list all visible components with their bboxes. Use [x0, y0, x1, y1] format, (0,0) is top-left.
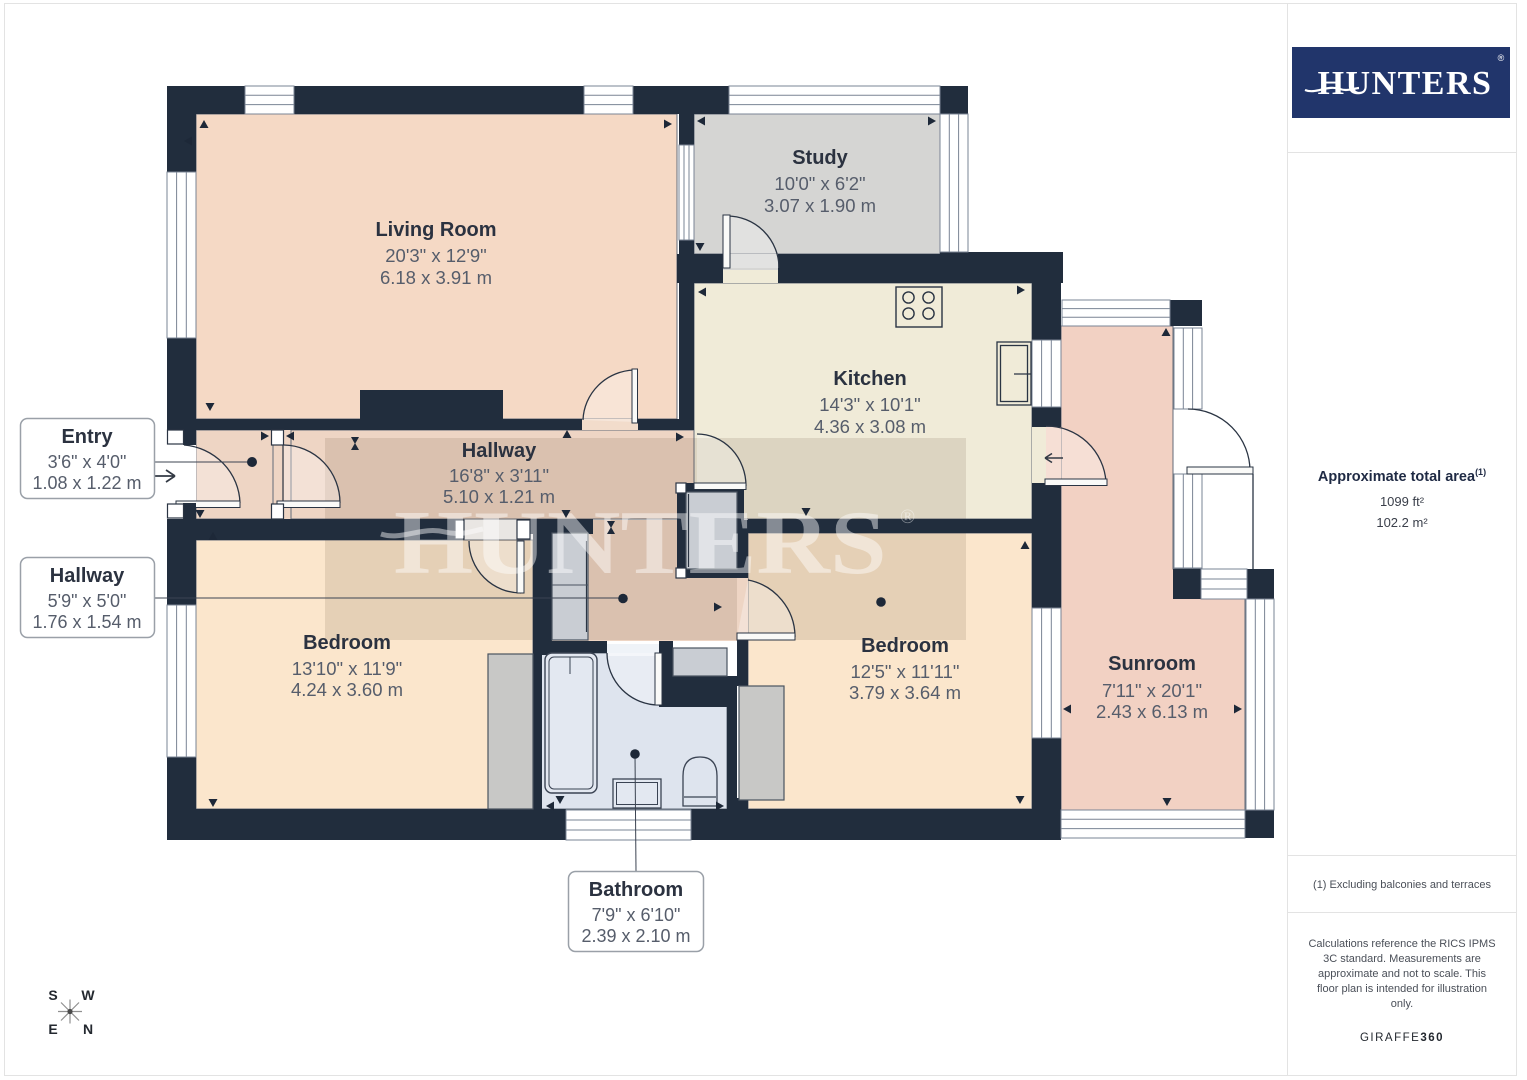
svg-text:3'6" x 4'0": 3'6" x 4'0": [48, 452, 127, 472]
svg-text:7'9" x 6'10": 7'9" x 6'10": [592, 905, 681, 925]
svg-text:W: W: [81, 987, 95, 1003]
svg-text:floor plan is intended for ill: floor plan is intended for illustration: [1317, 983, 1487, 995]
svg-text:Approximate total area(1): Approximate total area(1): [1318, 467, 1486, 485]
svg-text:only.: only.: [1391, 998, 1413, 1010]
svg-text:5'9" x 5'0": 5'9" x 5'0": [48, 591, 127, 611]
svg-text:HUNTERS: HUNTERS: [394, 492, 887, 593]
svg-text:3C standard. Measurements are: 3C standard. Measurements are: [1323, 953, 1481, 965]
svg-text:10'0" x 6'2": 10'0" x 6'2": [774, 173, 865, 194]
svg-text:®: ®: [900, 506, 915, 528]
svg-text:20'3" x 12'9": 20'3" x 12'9": [385, 245, 486, 266]
svg-text:Bedroom: Bedroom: [303, 632, 391, 654]
svg-text:Bedroom: Bedroom: [861, 635, 949, 657]
svg-text:13'10" x 11'9": 13'10" x 11'9": [292, 658, 402, 679]
svg-text:5.10 x 1.21 m: 5.10 x 1.21 m: [443, 486, 555, 507]
svg-text:16'8" x 3'11": 16'8" x 3'11": [449, 465, 549, 486]
svg-text:Kitchen: Kitchen: [833, 368, 906, 390]
svg-text:®: ®: [1498, 53, 1505, 63]
svg-text:7'11" x 20'1": 7'11" x 20'1": [1102, 680, 1202, 701]
svg-text:12'5" x 11'11": 12'5" x 11'11": [850, 661, 959, 682]
svg-text:3.07 x 1.90 m: 3.07 x 1.90 m: [764, 195, 876, 216]
svg-text:1.76 x 1.54 m: 1.76 x 1.54 m: [32, 612, 141, 632]
svg-text:Bathroom: Bathroom: [589, 879, 683, 901]
svg-text:Hallway: Hallway: [462, 440, 537, 462]
svg-text:GIRAFFE360: GIRAFFE360: [1360, 1032, 1444, 1044]
svg-text:(1) Excluding balconies and te: (1) Excluding balconies and terraces: [1313, 879, 1491, 891]
svg-text:Study: Study: [792, 147, 848, 169]
svg-text:Hallway: Hallway: [50, 565, 125, 587]
svg-text:6.18 x 3.91 m: 6.18 x 3.91 m: [380, 267, 492, 288]
svg-text:4.36 x 3.08 m: 4.36 x 3.08 m: [814, 416, 926, 437]
svg-text:1.08 x 1.22 m: 1.08 x 1.22 m: [32, 473, 141, 493]
svg-text:S: S: [48, 987, 57, 1003]
svg-text:14'3" x 10'1": 14'3" x 10'1": [819, 394, 920, 415]
svg-text:N: N: [83, 1021, 93, 1037]
svg-text:Entry: Entry: [61, 426, 113, 448]
svg-text:2.43 x 6.13 m: 2.43 x 6.13 m: [1096, 701, 1208, 722]
svg-text:1099 ft²: 1099 ft²: [1380, 494, 1425, 509]
svg-text:Living Room: Living Room: [375, 219, 496, 241]
svg-text:2.39 x 2.10 m: 2.39 x 2.10 m: [581, 926, 690, 946]
svg-text:E: E: [48, 1021, 57, 1037]
svg-text:3.79 x 3.64 m: 3.79 x 3.64 m: [849, 682, 961, 703]
svg-text:Sunroom: Sunroom: [1108, 653, 1196, 675]
svg-text:approximate and not to scale.: approximate and not to scale. This: [1318, 968, 1486, 980]
svg-text:HUNTERS: HUNTERS: [1318, 65, 1493, 102]
svg-text:4.24 x 3.60 m: 4.24 x 3.60 m: [291, 679, 403, 700]
svg-text:102.2 m²: 102.2 m²: [1376, 515, 1428, 530]
svg-text:Calculations reference the RIC: Calculations reference the RICS IPMS: [1308, 938, 1495, 950]
